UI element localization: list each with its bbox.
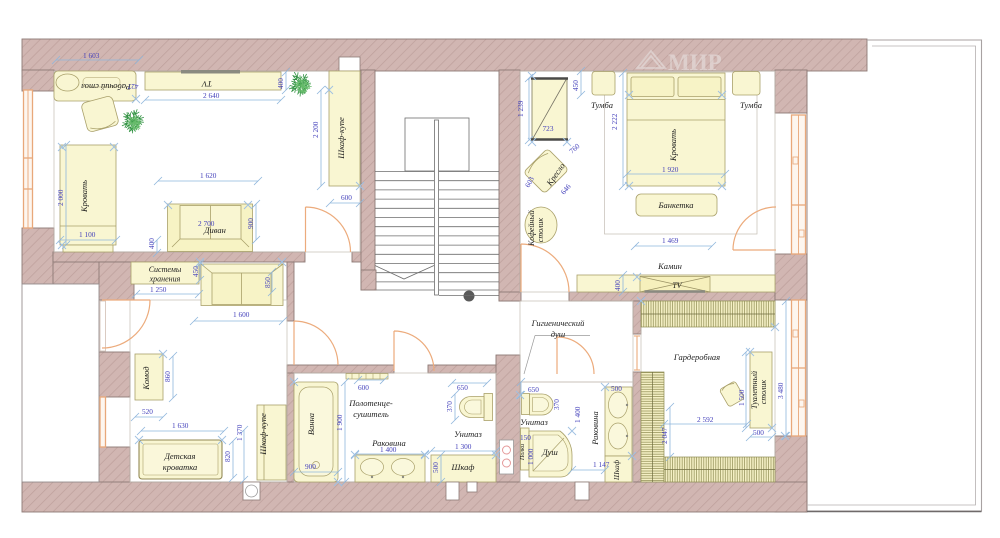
svg-text:3 480: 3 480 <box>776 382 785 399</box>
svg-text:1 630: 1 630 <box>172 421 189 430</box>
svg-text:Туалетный: Туалетный <box>750 371 759 409</box>
svg-text:1 600: 1 600 <box>233 310 250 319</box>
svg-text:2 700: 2 700 <box>198 219 215 228</box>
svg-text:650: 650 <box>528 385 539 394</box>
svg-text:1 370: 1 370 <box>235 424 244 441</box>
svg-text:520: 520 <box>142 407 153 416</box>
svg-text:2 200: 2 200 <box>311 121 320 138</box>
svg-text:500: 500 <box>753 428 764 437</box>
svg-text:Шкаф-купе: Шкаф-купе <box>258 413 268 456</box>
svg-text:ТV: ТV <box>672 281 682 290</box>
svg-text:400: 400 <box>613 280 622 291</box>
svg-text:Тумба: Тумба <box>591 100 613 110</box>
svg-text:сушитель: сушитель <box>353 409 389 419</box>
svg-text:Ванна: Ванна <box>306 413 316 435</box>
svg-text:150: 150 <box>520 433 531 442</box>
svg-text:Душ: Душ <box>541 447 558 457</box>
svg-text:427: 427 <box>127 82 138 91</box>
svg-text:Шкаф: Шкаф <box>612 459 621 481</box>
svg-text:1 400: 1 400 <box>380 445 397 454</box>
svg-text:1 400: 1 400 <box>573 406 582 423</box>
svg-text:820: 820 <box>223 451 232 462</box>
svg-text:Гардеробная: Гардеробная <box>673 352 720 362</box>
svg-text:Гигиенический: Гигиенический <box>531 318 585 328</box>
svg-text:Унитаз: Унитаз <box>454 429 482 439</box>
svg-text:600: 600 <box>358 383 369 392</box>
svg-text:850: 850 <box>263 277 272 288</box>
svg-text:Детская: Детская <box>164 451 196 461</box>
svg-text:душ: душ <box>551 329 566 339</box>
svg-text:Кровать: Кровать <box>79 180 89 213</box>
svg-text:500: 500 <box>611 384 622 393</box>
svg-text:Полотенце-: Полотенце- <box>348 398 393 408</box>
svg-text:1 300: 1 300 <box>455 442 472 451</box>
svg-text:Шкаф: Шкаф <box>451 462 475 472</box>
svg-text:600: 600 <box>341 193 352 202</box>
svg-text:Рабочий стол: Рабочий стол <box>81 82 132 92</box>
svg-text:400: 400 <box>276 78 285 89</box>
svg-text:столик: столик <box>536 218 545 243</box>
svg-text:1 500: 1 500 <box>737 389 746 406</box>
svg-text:Банкетка: Банкетка <box>657 200 693 210</box>
svg-text:860: 860 <box>163 371 172 382</box>
svg-text:2 047: 2 047 <box>660 427 669 444</box>
svg-text:Комод: Комод <box>141 366 151 391</box>
svg-text:1 239: 1 239 <box>516 100 525 117</box>
svg-text:Шкаф-купе: Шкаф-купе <box>336 117 346 160</box>
svg-text:Полки: Полки <box>519 444 526 461</box>
svg-text:1 603: 1 603 <box>83 51 100 60</box>
svg-text:Тумба: Тумба <box>740 100 762 110</box>
svg-text:723: 723 <box>543 124 554 133</box>
svg-text:хранения: хранения <box>149 275 181 284</box>
svg-text:столик: столик <box>759 380 768 405</box>
svg-text:450: 450 <box>571 80 580 91</box>
svg-text:1 900: 1 900 <box>335 414 344 431</box>
svg-text:1 920: 1 920 <box>662 165 679 174</box>
svg-text:2 000: 2 000 <box>56 189 65 206</box>
svg-text:370: 370 <box>445 401 454 412</box>
svg-text:2 592: 2 592 <box>697 415 714 424</box>
svg-text:2 640: 2 640 <box>203 91 220 100</box>
svg-text:1 250: 1 250 <box>150 285 167 294</box>
svg-text:370: 370 <box>552 399 561 410</box>
svg-text:Камин: Камин <box>657 261 682 271</box>
svg-text:1 100: 1 100 <box>79 230 96 239</box>
svg-text:900: 900 <box>305 462 316 471</box>
svg-text:900: 900 <box>246 218 255 229</box>
svg-text:кроватка: кроватка <box>163 462 198 472</box>
svg-text:1 147: 1 147 <box>593 460 610 469</box>
svg-text:Кровать: Кровать <box>668 129 678 162</box>
svg-text:Кофейный: Кофейный <box>527 210 536 247</box>
svg-text:2 222: 2 222 <box>610 113 619 130</box>
svg-text:Системы: Системы <box>149 265 182 274</box>
svg-text:1 620: 1 620 <box>200 171 217 180</box>
svg-text:1 000: 1 000 <box>526 448 535 465</box>
svg-text:1 469: 1 469 <box>662 236 679 245</box>
svg-text:400: 400 <box>147 238 156 249</box>
svg-text:650: 650 <box>457 383 468 392</box>
svg-text:500: 500 <box>431 462 440 473</box>
svg-text:450: 450 <box>191 266 200 277</box>
svg-text:Раковина: Раковина <box>590 411 600 445</box>
svg-text:Унитаз: Унитаз <box>520 417 548 427</box>
